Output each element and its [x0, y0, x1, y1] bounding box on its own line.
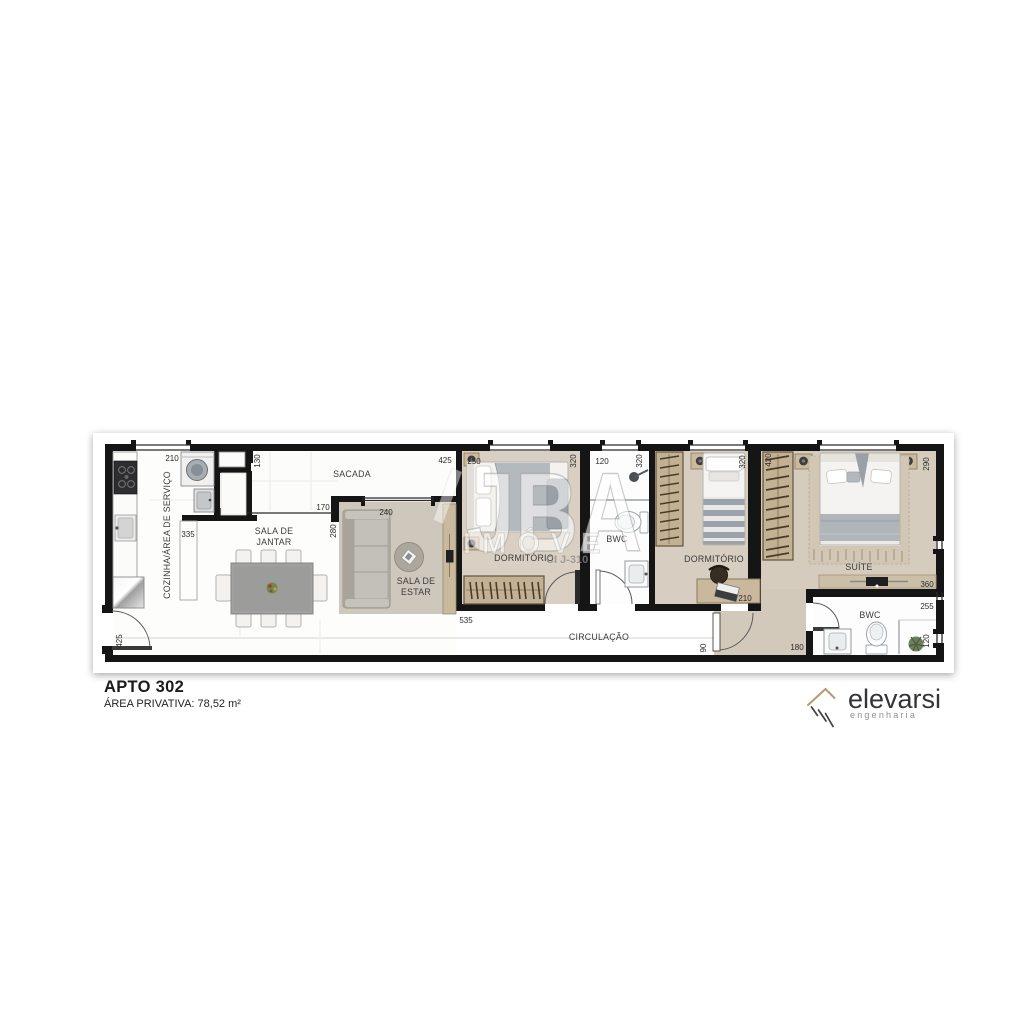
svg-text:335: 335: [181, 530, 195, 539]
svg-text:210: 210: [738, 594, 752, 603]
svg-text:425: 425: [115, 634, 124, 648]
svg-text:IMÓVE: IMÓVE: [463, 526, 611, 560]
svg-text:COZINHA/ÁREA DE SERVIÇO: COZINHA/ÁREA DE SERVIÇO: [162, 471, 172, 599]
svg-text:320: 320: [738, 455, 747, 469]
svg-text:SUÍTE: SUÍTE: [845, 562, 872, 572]
svg-text:290: 290: [922, 457, 931, 471]
svg-text:180: 180: [790, 643, 804, 652]
svg-text:SALA DE: SALA DE: [255, 526, 293, 536]
svg-text:APTO 302: APTO 302: [104, 678, 184, 696]
svg-text:ÁREA PRIVATIVA: 78,52 m²: ÁREA PRIVATIVA: 78,52 m²: [104, 697, 241, 710]
svg-text:90: 90: [699, 643, 708, 652]
svg-text:425: 425: [438, 456, 452, 465]
svg-text:130: 130: [253, 454, 262, 468]
svg-text:BWC: BWC: [859, 610, 881, 620]
svg-text:210: 210: [165, 454, 179, 463]
svg-text:SACADA: SACADA: [333, 469, 371, 479]
svg-text:120: 120: [922, 634, 931, 648]
svg-text:SALA DE: SALA DE: [397, 576, 435, 586]
svg-text:ESTAR: ESTAR: [401, 587, 431, 597]
svg-text:535: 535: [459, 616, 473, 625]
svg-text:255: 255: [920, 602, 934, 611]
svg-text:CIRCULAÇÃO: CIRCULAÇÃO: [569, 632, 629, 642]
svg-text:CI J-310: CI J-310: [546, 554, 588, 566]
svg-text:360: 360: [920, 580, 934, 589]
svg-text:170: 170: [316, 503, 330, 512]
svg-text:240: 240: [379, 508, 393, 517]
svg-text:engenharia: engenharia: [850, 710, 917, 720]
svg-text:DORMITÓRIO: DORMITÓRIO: [684, 554, 744, 564]
svg-text:JANTAR: JANTAR: [256, 537, 291, 547]
svg-text:420: 420: [764, 453, 773, 467]
svg-text:280: 280: [329, 524, 338, 538]
